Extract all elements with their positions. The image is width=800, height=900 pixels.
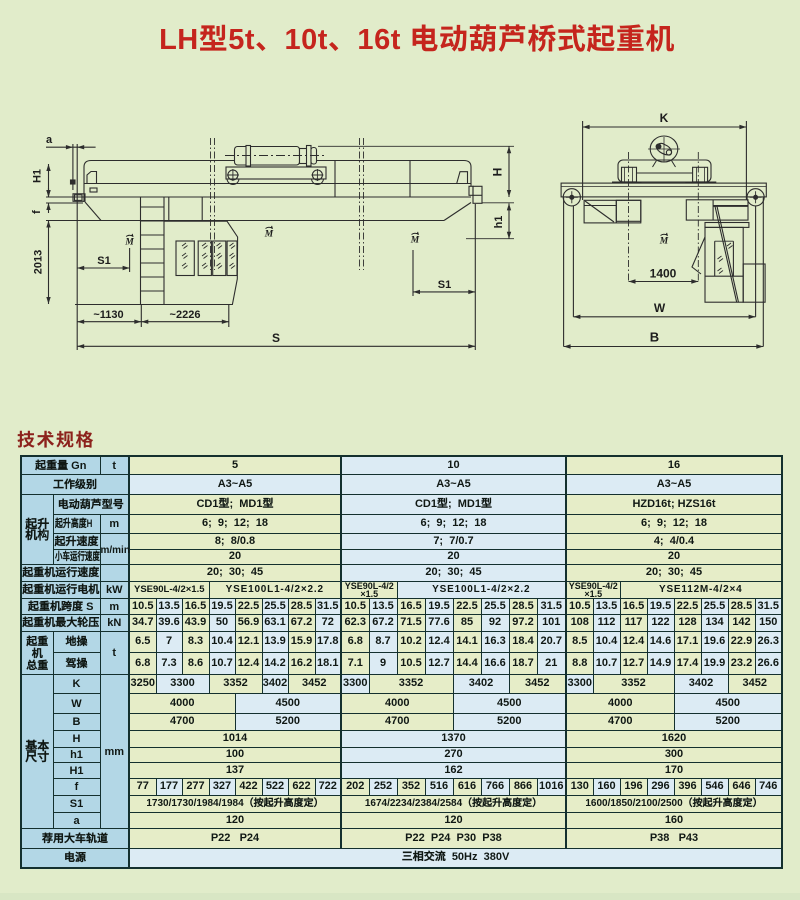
svg-text:M: M: [659, 237, 669, 247]
svg-text:~2226: ~2226: [170, 309, 201, 321]
svg-text:M: M: [264, 230, 274, 240]
svg-text:S: S: [272, 331, 280, 345]
svg-text:S1: S1: [97, 255, 110, 267]
svg-text:H: H: [491, 168, 505, 177]
svg-text:1400: 1400: [650, 267, 677, 281]
svg-text:M: M: [410, 236, 420, 246]
svg-text:f: f: [31, 210, 43, 214]
svg-text:h1: h1: [493, 216, 505, 229]
svg-text:~1130: ~1130: [93, 309, 123, 321]
svg-text:B: B: [650, 330, 659, 345]
svg-text:K: K: [660, 111, 669, 125]
svg-text:2013: 2013: [33, 250, 45, 274]
svg-text:W: W: [654, 301, 666, 315]
svg-text:a: a: [46, 134, 53, 146]
svg-text:M: M: [124, 238, 134, 248]
svg-text:H1: H1: [32, 169, 44, 183]
svg-text:S1: S1: [438, 279, 451, 291]
